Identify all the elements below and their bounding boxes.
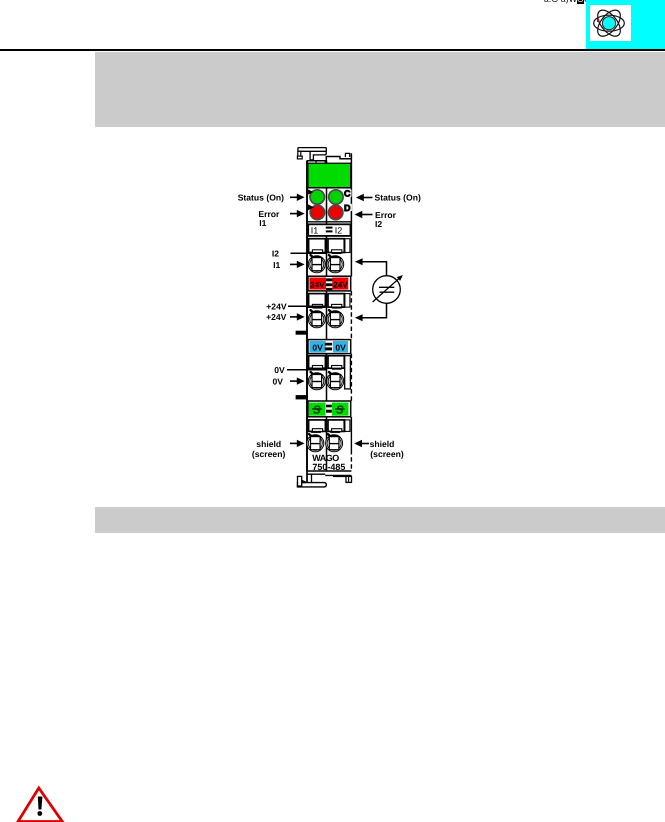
- svg-text:(screen): (screen): [252, 449, 286, 459]
- svg-text:I2: I2: [335, 226, 343, 236]
- svg-text:Status (On): Status (On): [238, 192, 284, 202]
- svg-text:I1: I1: [311, 226, 319, 236]
- svg-text:I1: I1: [259, 218, 266, 228]
- svg-text:(screen): (screen): [370, 449, 404, 459]
- svg-text:C: C: [344, 189, 351, 199]
- svg-text:Status (On): Status (On): [375, 193, 421, 203]
- svg-text:D: D: [344, 203, 351, 213]
- svg-text:shield: shield: [370, 439, 395, 449]
- svg-text:24V: 24V: [310, 281, 325, 290]
- svg-text:I1: I1: [273, 260, 280, 270]
- svg-text:S: S: [336, 404, 344, 416]
- svg-text:0V: 0V: [335, 342, 346, 352]
- svg-text:shield: shield: [256, 439, 281, 449]
- svg-text:0V: 0V: [312, 342, 323, 352]
- svg-text:I2: I2: [272, 249, 279, 259]
- svg-text:S: S: [313, 404, 321, 416]
- svg-text:+24V: +24V: [266, 302, 287, 312]
- svg-text:I2: I2: [375, 219, 382, 229]
- svg-text:0V: 0V: [272, 376, 283, 386]
- svg-text:24V: 24V: [333, 281, 348, 290]
- svg-text:+24V: +24V: [266, 312, 287, 322]
- svg-text:0V: 0V: [274, 365, 285, 375]
